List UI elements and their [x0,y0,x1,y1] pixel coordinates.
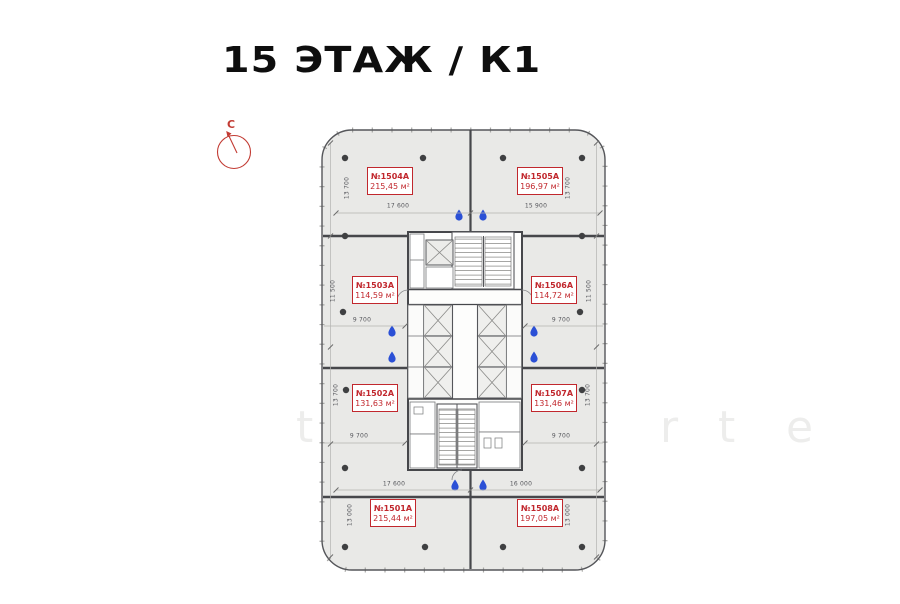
core-room [426,267,453,288]
compass-north-label: С [227,118,235,131]
dim-side-bot-r: 13 000 [565,504,572,526]
unit-number: №1501А [374,504,412,513]
dim-wing-ul: 9 700 [353,317,371,324]
dim-side-mid-r: 11 500 [586,280,593,302]
dim-top-left: 17 600 [387,203,409,210]
unit-number: №1502А [356,389,394,398]
floor-plan-page: 15 ЭТАЖ / К1 t e x r t e С [0,0,900,604]
unit-number: №1506А [535,281,573,290]
unit-area: 197,05 м² [520,514,560,523]
unit-label-1504[interactable]: №1504А 215,45 м² [367,167,413,195]
unit-area: 215,45 м² [370,182,410,191]
unit-label-1502[interactable]: №1502А 131,63 м² [352,384,398,412]
unit-area: 114,59 м² [355,291,395,300]
unit-label-1508[interactable]: №1508А 197,05 м² [517,499,563,527]
dim-bottom-left: 17 600 [383,481,405,488]
dim-side-third-l: 13 700 [333,384,340,406]
dim-top-right: 15 900 [525,203,547,210]
unit-area: 215,44 м² [373,514,413,523]
unit-label-1506[interactable]: №1506А 114,72 м² [531,276,577,304]
unit-area: 196,97 м² [520,182,560,191]
core-shaft-strip [408,305,424,398]
stairwell-bottom [437,404,477,468]
dim-bottom-right: 16 000 [510,481,532,488]
core-room [410,234,424,288]
unit-label-1507[interactable]: №1507А 131,46 м² [531,384,577,412]
dim-side-top-l: 13 700 [344,177,351,199]
floor-plan-drawing: С [0,0,900,604]
dim-side-bot-l: 13 000 [347,504,354,526]
unit-area: 131,46 м² [534,399,574,408]
core-shaft-strip [507,305,522,398]
unit-label-1505[interactable]: №1505А 196,97 м² [517,167,563,195]
compass-icon: С [218,118,251,169]
unit-area: 114,72 м² [534,291,574,300]
dim-wing-ll: 9 700 [350,433,368,440]
elevator-cell [426,240,453,265]
dim-wing-lr: 9 700 [552,433,570,440]
stairwell-top [452,232,514,289]
building-core [397,232,533,480]
elevator-bank-left [424,305,453,398]
unit-area: 131,63 м² [355,399,395,408]
dim-side-mid-l: 11 500 [330,280,337,302]
dim-side-third-r: 13 700 [585,384,592,406]
unit-number: №1503А [356,281,394,290]
dim-wing-ur: 9 700 [552,317,570,324]
dim-side-top-r: 13 700 [565,177,572,199]
elevator-bank-right [478,305,507,398]
unit-label-1501[interactable]: №1501А 215,44 м² [370,499,416,527]
unit-number: №1507А [535,389,573,398]
unit-number: №1505А [521,172,559,181]
unit-number: №1508А [521,504,559,513]
unit-label-1503[interactable]: №1503А 114,59 м² [352,276,398,304]
unit-number: №1504А [371,172,409,181]
